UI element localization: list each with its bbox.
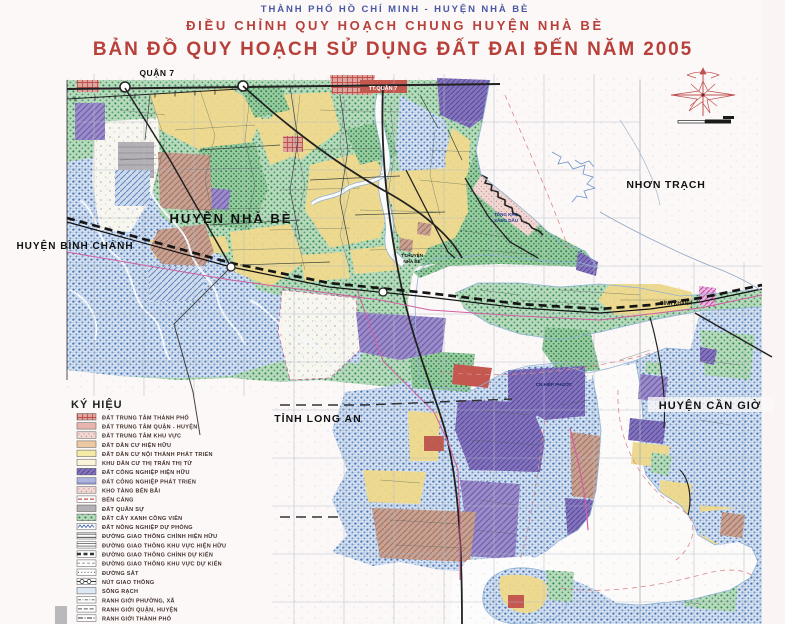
svg-text:HUYỆN BÌNH CHÁNH: HUYỆN BÌNH CHÁNH (16, 239, 133, 252)
svg-text:ĐẤT TRUNG TÂM QUẬN - HUYỆN: ĐẤT TRUNG TÂM QUẬN - HUYỆN (102, 422, 198, 430)
svg-text:NÚT GIAO THÔNG: NÚT GIAO THÔNG (102, 578, 154, 586)
svg-text:NHÀ BÈ: NHÀ BÈ (403, 257, 420, 264)
svg-text:ĐƯỜNG GIAO THÔNG KHU VỰC DỰ KI: ĐƯỜNG GIAO THÔNG KHU VỰC DỰ KIẾN (102, 560, 222, 568)
svg-text:RANH GIỚI PHƯỜNG, XÃ: RANH GIỚI PHƯỜNG, XÃ (102, 596, 175, 604)
svg-text:ĐIỀU CHỈNH QUY HOẠCH CHUNG HUY: ĐIỀU CHỈNH QUY HOẠCH CHUNG HUYỆN NHÀ BÈ (186, 18, 604, 33)
svg-text:BẾN CẢNG: BẾN CẢNG (102, 497, 134, 504)
svg-text:ĐẤT NÔNG NGHIỆP DỰ PHÒNG: ĐẤT NÔNG NGHIỆP DỰ PHÒNG (102, 523, 193, 531)
svg-text:NHƠN TRẠCH: NHƠN TRẠCH (626, 179, 705, 191)
svg-text:ĐẤT QUÂN SỰ: ĐẤT QUÂN SỰ (102, 506, 144, 513)
svg-text:RANH GIỚI QUẬN, HUYỆN: RANH GIỚI QUẬN, HUYỆN (102, 605, 178, 613)
svg-text:ĐẤT CÔNG NGHIỆP PHÁT TRIỂN: ĐẤT CÔNG NGHIỆP PHÁT TRIỂN (102, 477, 196, 485)
svg-text:HUYỆN CẦN GIỜ: HUYỆN CẦN GIỜ (659, 399, 761, 412)
svg-text:ĐƯỜNG SẮT: ĐƯỜNG SẮT (102, 569, 139, 577)
svg-text:QUẬN 7: QUẬN 7 (139, 67, 174, 78)
svg-text:ĐẤT CÂY XANH CÔNG VIÊN: ĐẤT CÂY XANH CÔNG VIÊN (102, 514, 182, 522)
svg-text:BÌNH KHÁNH: BÌNH KHÁNH (660, 299, 692, 307)
svg-text:ĐƯỜNG GIAO THÔNG CHÍNH HIỆN HỮ: ĐƯỜNG GIAO THÔNG CHÍNH HIỆN HỮU (102, 532, 217, 540)
svg-text:KÝ HIỆU: KÝ HIỆU (71, 398, 123, 411)
svg-text:TT.HUYỆN: TT.HUYỆN (401, 251, 423, 258)
svg-text:XĂNG DẦU: XĂNG DẦU (494, 217, 518, 223)
svg-text:ĐƯỜNG GIAO THÔNG CHÍNH DỰ KIẾN: ĐƯỜNG GIAO THÔNG CHÍNH DỰ KIẾN (102, 551, 213, 559)
svg-text:SÔNG RẠCH: SÔNG RẠCH (102, 587, 138, 595)
svg-text:CN.HIỆP PHƯỚC: CN.HIỆP PHƯỚC (536, 380, 573, 387)
svg-text:ĐẤT TRUNG TÂM KHU VỰC: ĐẤT TRUNG TÂM KHU VỰC (102, 433, 181, 440)
svg-text:ĐƯỜNG GIAO THÔNG KHU VỰC HIỆN: ĐƯỜNG GIAO THÔNG KHU VỰC HIỆN HỮU (102, 541, 226, 549)
svg-text:KHO TÀNG BẾN BÃI: KHO TÀNG BẾN BÃI (102, 488, 160, 495)
svg-text:THÀNH PHỐ HỒ CHÍ MINH - HUYỆN: THÀNH PHỐ HỒ CHÍ MINH - HUYỆN NHÀ BÈ (261, 3, 529, 15)
svg-text:ĐẤT TRUNG TÂM THÀNH PHỐ: ĐẤT TRUNG TÂM THÀNH PHỐ (102, 414, 189, 421)
svg-text:TT.QUẬN 7: TT.QUẬN 7 (369, 85, 397, 92)
svg-text:KHU DÂN CƯ THỊ TRẤN THỊ TỨ: KHU DÂN CƯ THỊ TRẤN THỊ TỨ (102, 460, 192, 467)
svg-text:ĐẤT CÔNG NGHIỆP HIỆN HỮU: ĐẤT CÔNG NGHIỆP HIỆN HỮU (102, 468, 190, 476)
svg-text:TỈNH LONG AN: TỈNH LONG AN (274, 412, 361, 425)
svg-text:ĐẤT DÂN CƯ NỘI THÀNH PHÁT TRIỂ: ĐẤT DÂN CƯ NỘI THÀNH PHÁT TRIỂN (102, 450, 213, 458)
svg-text:BẢN ĐỒ QUY HOẠCH SỬ DỤNG ĐẤT Đ: BẢN ĐỒ QUY HOẠCH SỬ DỤNG ĐẤT ĐAI ĐẾN NĂM… (93, 38, 693, 60)
svg-text:ĐẤT DÂN CƯ HIỆN HỮU: ĐẤT DÂN CƯ HIỆN HỮU (102, 441, 171, 449)
svg-text:HUYỆN NHÀ BÈ: HUYỆN NHÀ BÈ (170, 211, 293, 226)
svg-text:TỔNG KHO: TỔNG KHO (494, 211, 519, 217)
svg-text:RANH GIỚI THÀNH PHỐ: RANH GIỚI THÀNH PHỐ (102, 615, 172, 623)
